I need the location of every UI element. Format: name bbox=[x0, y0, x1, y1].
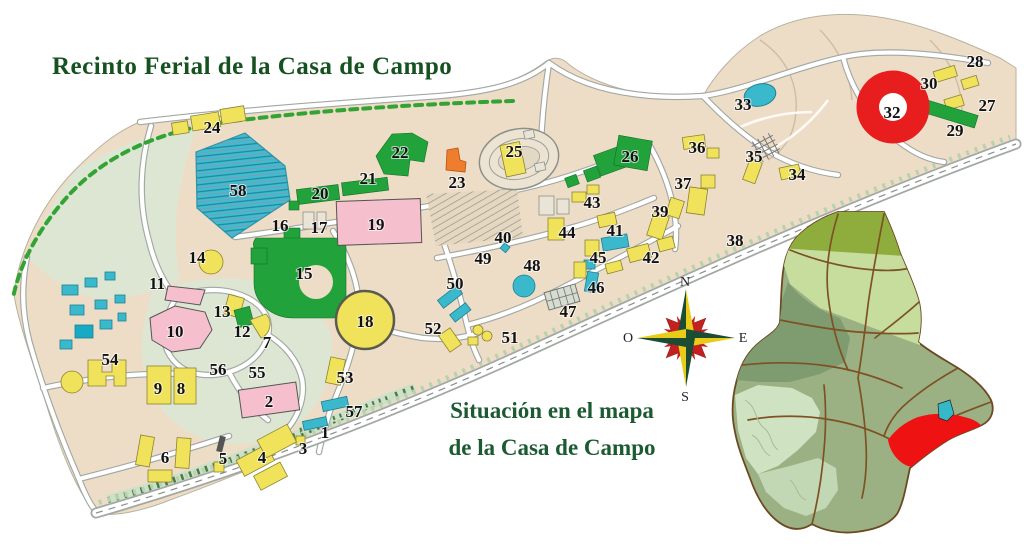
map-marker-32: 32 bbox=[884, 103, 901, 122]
map-title: Recinto Ferial de la Casa de Campo bbox=[52, 53, 452, 80]
compass-label-east: E bbox=[739, 331, 748, 346]
compass-label-north: N bbox=[680, 275, 690, 290]
map-marker-29: 29 bbox=[947, 121, 964, 140]
map-marker-13: 13 bbox=[214, 302, 231, 321]
map-marker-35: 35 bbox=[746, 147, 763, 166]
map-marker-23: 23 bbox=[449, 173, 466, 192]
compass-main-arms bbox=[637, 289, 735, 387]
map-marker-56: 56 bbox=[210, 360, 227, 379]
map-marker-26: 26 bbox=[622, 147, 639, 166]
map-marker-44: 44 bbox=[559, 223, 577, 242]
map-marker-18: 18 bbox=[357, 312, 374, 331]
map-marker-6: 6 bbox=[161, 448, 170, 467]
map-marker-54: 54 bbox=[102, 350, 120, 369]
map-marker-43: 43 bbox=[584, 193, 601, 212]
map-marker-9: 9 bbox=[154, 379, 163, 398]
map-marker-14: 14 bbox=[189, 248, 207, 267]
map-marker-36: 36 bbox=[689, 138, 706, 157]
map-marker-38: 38 bbox=[727, 231, 744, 250]
map-marker-7: 7 bbox=[263, 333, 272, 352]
map-marker-4: 4 bbox=[258, 448, 267, 467]
map-canvas: N S E O bbox=[0, 0, 1024, 556]
map-marker-58: 58 bbox=[230, 181, 247, 200]
compass-label-south: S bbox=[681, 390, 689, 405]
map-marker-10: 10 bbox=[167, 322, 184, 341]
map-marker-34: 34 bbox=[789, 165, 807, 184]
map-marker-41: 41 bbox=[607, 221, 624, 240]
map-marker-39: 39 bbox=[652, 202, 669, 221]
map-marker-22: 22 bbox=[392, 143, 409, 162]
map-marker-40: 40 bbox=[495, 228, 512, 247]
map-marker-17: 17 bbox=[311, 218, 329, 237]
map-marker-15: 15 bbox=[296, 264, 313, 283]
map-marker-24: 24 bbox=[204, 118, 222, 137]
map-page: N S E O bbox=[0, 0, 1024, 556]
caption-line-1: Situación en el mapa bbox=[450, 398, 654, 423]
map-marker-28: 28 bbox=[967, 52, 984, 71]
map-marker-53: 53 bbox=[337, 368, 354, 387]
map-marker-1: 1 bbox=[321, 423, 330, 442]
map-marker-19: 19 bbox=[368, 215, 385, 234]
map-marker-27: 27 bbox=[979, 96, 997, 115]
map-marker-52: 52 bbox=[425, 319, 442, 338]
map-marker-20: 20 bbox=[312, 184, 329, 203]
map-marker-51: 51 bbox=[502, 328, 519, 347]
map-marker-55: 55 bbox=[249, 363, 266, 382]
map-marker-47: 47 bbox=[560, 302, 578, 321]
inset-map bbox=[733, 210, 993, 533]
map-marker-8: 8 bbox=[177, 379, 186, 398]
map-marker-25: 25 bbox=[506, 142, 523, 161]
site-48 bbox=[513, 275, 535, 297]
map-marker-49: 49 bbox=[475, 249, 492, 268]
map-marker-48: 48 bbox=[524, 256, 541, 275]
map-marker-30: 30 bbox=[921, 74, 938, 93]
map-marker-42: 42 bbox=[643, 248, 660, 267]
map-marker-50: 50 bbox=[447, 274, 464, 293]
map-marker-46: 46 bbox=[588, 278, 605, 297]
map-marker-57: 57 bbox=[346, 402, 364, 421]
caption-line-2: de la Casa de Campo bbox=[448, 435, 655, 460]
map-marker-12: 12 bbox=[234, 322, 251, 341]
map-marker-45: 45 bbox=[590, 248, 607, 267]
map-marker-2: 2 bbox=[265, 392, 274, 411]
map-marker-11: 11 bbox=[149, 274, 165, 293]
map-marker-16: 16 bbox=[272, 216, 289, 235]
map-marker-3: 3 bbox=[299, 439, 308, 458]
map-marker-5: 5 bbox=[219, 449, 228, 468]
map-marker-33: 33 bbox=[735, 95, 752, 114]
compass-label-west: O bbox=[623, 331, 633, 346]
map-marker-37: 37 bbox=[675, 174, 693, 193]
map-marker-21: 21 bbox=[360, 169, 377, 188]
